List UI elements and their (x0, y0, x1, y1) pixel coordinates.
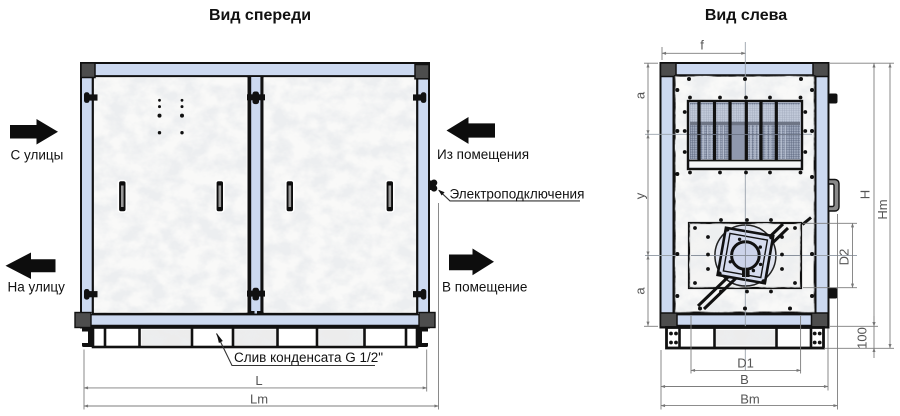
svg-text:Lm: Lm (250, 392, 268, 407)
svg-text:y: y (633, 192, 648, 199)
svg-text:Слив конденсата G 1/2": Слив конденсата G 1/2" (234, 350, 383, 365)
svg-text:Bm: Bm (740, 392, 760, 407)
svg-text:a: a (633, 91, 648, 99)
svg-text:Вид слева: Вид слева (705, 7, 787, 24)
svg-text:D1: D1 (737, 356, 754, 371)
svg-text:С улицы: С улицы (11, 148, 64, 163)
svg-text:B: B (740, 372, 749, 387)
svg-text:f: f (700, 38, 704, 53)
svg-text:Из помещения: Из помещения (437, 147, 529, 162)
svg-text:Hm: Hm (875, 199, 890, 219)
svg-text:L: L (255, 373, 262, 388)
svg-text:H: H (858, 190, 873, 199)
svg-text:Вид спереди: Вид спереди (209, 7, 311, 24)
svg-text:На улицу: На улицу (8, 280, 66, 295)
svg-text:a: a (633, 287, 648, 295)
svg-text:D2: D2 (837, 249, 852, 266)
svg-text:Электроподключения: Электроподключения (450, 187, 585, 202)
svg-text:100: 100 (855, 327, 870, 349)
svg-text:В помещение: В помещение (442, 280, 527, 295)
